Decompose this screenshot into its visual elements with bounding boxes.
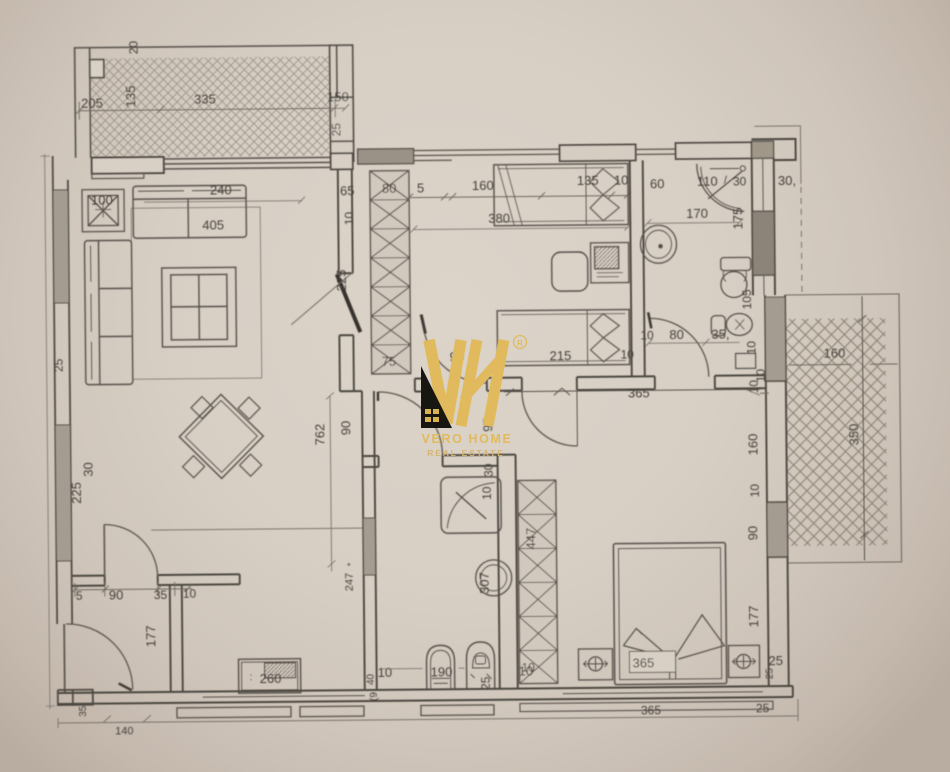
svg-text:240: 240: [210, 182, 232, 197]
svg-text:90: 90: [745, 526, 760, 541]
svg-text:762: 762: [312, 424, 327, 446]
svg-text:215: 215: [550, 348, 572, 363]
svg-text:160: 160: [823, 345, 845, 360]
svg-text:25: 25: [765, 668, 776, 680]
svg-text:25: 25: [329, 123, 343, 137]
svg-text:225: 225: [69, 482, 84, 504]
svg-text:365: 365: [628, 385, 650, 400]
svg-text:25: 25: [52, 358, 66, 372]
svg-text:110: 110: [697, 174, 718, 189]
svg-text:405: 405: [202, 217, 224, 232]
svg-text:10: 10: [754, 369, 768, 383]
svg-text:135: 135: [123, 86, 138, 108]
svg-text:25: 25: [756, 701, 770, 715]
svg-text:260: 260: [260, 671, 282, 686]
svg-text:10: 10: [378, 665, 393, 680]
svg-text:35: 35: [154, 588, 168, 602]
svg-text:160: 160: [745, 434, 760, 456]
svg-text:177: 177: [746, 606, 761, 628]
svg-text:VERO HOME: VERO HOME: [422, 432, 513, 446]
svg-text:350: 350: [846, 424, 861, 446]
svg-text:30: 30: [733, 174, 747, 188]
svg-text:25: 25: [479, 676, 493, 690]
svg-text:447: 447: [523, 528, 538, 550]
svg-text:247: 247: [344, 573, 356, 591]
svg-text:30: 30: [81, 462, 96, 477]
svg-text:205: 205: [81, 96, 103, 111]
svg-text:REAL ESTATE: REAL ESTATE: [427, 448, 504, 458]
svg-text:30,: 30,: [778, 173, 796, 188]
svg-text:105: 105: [740, 289, 754, 309]
svg-text:(9: (9: [369, 692, 380, 701]
svg-text:10: 10: [640, 328, 654, 342]
svg-text:140: 140: [115, 725, 133, 737]
svg-text:225: 225: [334, 270, 349, 292]
svg-text:75: 75: [382, 354, 397, 369]
svg-text:307: 307: [477, 572, 492, 594]
svg-text:335: 335: [194, 91, 216, 106]
svg-text:190: 190: [431, 664, 453, 679]
svg-text:365: 365: [641, 703, 661, 717]
svg-text:10: 10: [748, 484, 762, 498]
svg-text:135: 135: [577, 173, 599, 188]
svg-text:20: 20: [127, 41, 141, 55]
svg-text:170: 170: [686, 206, 708, 221]
svg-text:90: 90: [338, 421, 353, 436]
svg-text:80: 80: [669, 327, 684, 342]
svg-text:25: 25: [768, 653, 783, 668]
svg-text:65: 65: [340, 183, 355, 198]
svg-text:365: 365: [632, 655, 654, 670]
svg-text:40: 40: [366, 673, 377, 685]
svg-text:177: 177: [143, 625, 158, 647]
svg-text:10: 10: [480, 486, 494, 500]
svg-text:150: 150: [327, 89, 349, 104]
svg-text:*: *: [346, 562, 356, 566]
svg-text:60: 60: [650, 176, 665, 191]
svg-text:35,: 35,: [711, 327, 729, 342]
svg-text:160: 160: [472, 178, 494, 193]
svg-text:10: 10: [519, 663, 534, 678]
svg-text:35: 35: [78, 705, 89, 717]
svg-text:R: R: [517, 339, 523, 348]
svg-text::: :: [250, 672, 253, 683]
svg-text:10: 10: [744, 341, 758, 355]
svg-text:80: 80: [382, 181, 397, 196]
svg-text:10: 10: [183, 587, 197, 601]
svg-text:100: 100: [91, 192, 113, 207]
svg-text:90: 90: [109, 587, 124, 602]
svg-text:10: 10: [614, 173, 629, 188]
svg-text:5: 5: [417, 180, 424, 195]
svg-text:10: 10: [342, 211, 356, 225]
svg-text:380: 380: [488, 211, 510, 226]
svg-text:5: 5: [76, 589, 83, 603]
